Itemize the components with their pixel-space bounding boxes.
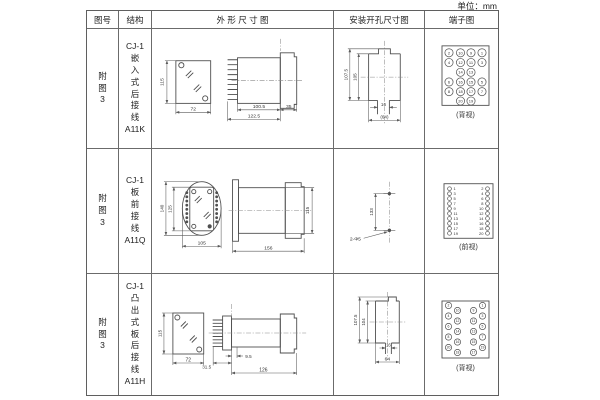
dimension-lines: [364, 194, 390, 239]
dimension-labels: 115 72 100.5 122.5 35: [159, 78, 291, 120]
spec-table: 图号 结构 外 形 尺 寸 图 安装开孔尺寸图 端子图 附 图 3 CJ-1 嵌…: [86, 10, 499, 396]
outline-diagram-row3: 115 72 9.5 31.5 126: [152, 274, 334, 395]
dimension-labels: 133 2-Φ5: [350, 208, 374, 243]
dim-label: 115: [159, 78, 165, 86]
terminal-pin: [486, 197, 490, 201]
terminal-number: 15: [469, 79, 474, 84]
terminal-number: 13: [472, 330, 476, 334]
dim-label: 100.5: [253, 104, 266, 110]
dim-label: 140: [159, 204, 164, 212]
dimension-lines: [162, 313, 297, 375]
header-fig-no: 图号: [87, 11, 119, 29]
dim-label: 156: [264, 246, 273, 252]
fig-no-row3: 附 图 3: [87, 274, 119, 395]
outline-drawing-a11h: 115 72 9.5 31.5 126: [152, 274, 333, 395]
dim-label: 107.5: [353, 314, 358, 326]
terminal-pin: [486, 207, 490, 211]
terminal-number: 19: [481, 346, 485, 350]
center-lines: [209, 304, 306, 333]
terminal-number: 20: [447, 346, 451, 350]
header-structure: 结构: [119, 11, 152, 29]
center-lines: [361, 41, 408, 124]
terminal-pin: [486, 212, 490, 216]
terminal-number: 13: [469, 70, 474, 75]
terminal-pins-grid: 2109141211314136161558181772019: [445, 49, 486, 105]
terminal-block: [444, 184, 493, 239]
dim-label: 31.5: [202, 364, 211, 369]
install-diagram-row3: 107.5 104 16 64: [334, 274, 425, 395]
terminal-pin: [448, 231, 452, 235]
terminal-number: 20: [479, 231, 484, 236]
terminal-number: 17: [469, 89, 473, 94]
dim-label: 115: [305, 206, 310, 214]
dim-label: 72: [191, 106, 197, 112]
terminal-number: 7: [481, 89, 483, 94]
install-drawing-a11q: 133 2-Φ5: [334, 149, 424, 273]
terminal-pin: [486, 217, 490, 221]
terminal-number: 3: [482, 314, 484, 318]
install-drawing-a11h: 107.5 104 16 64: [334, 274, 424, 395]
dim-label: 64: [385, 356, 391, 362]
terminal-diagram-row3: 2468201012141618911131517135719 (背视): [425, 274, 498, 395]
front-view: [182, 182, 221, 236]
view-caption: (前视): [459, 242, 478, 251]
terminal-number: 2: [448, 50, 450, 55]
terminal-diagram-row1: 2109141211314136161558181772019 (背视): [425, 29, 498, 149]
terminal-number: 20: [458, 98, 463, 103]
terminal-pin: [448, 217, 452, 221]
outline-diagram-row2: 140 125 105 156 115: [152, 149, 334, 274]
header-outline: 外 形 尺 寸 图: [152, 11, 334, 29]
dim-label: 35: [286, 104, 292, 110]
center-lines: [370, 292, 406, 360]
terminal-pin: [448, 192, 452, 196]
dimension-labels: 107.5 105 16 (64): [343, 68, 389, 119]
terminal-number: 18: [456, 351, 460, 355]
center-lines: [232, 39, 304, 81]
dim-label: 107.5: [343, 68, 348, 80]
terminal-number: 10: [458, 50, 463, 55]
fig-no-row2: 附 图 3: [87, 149, 119, 274]
terminal-number: 8: [448, 335, 450, 339]
terminal-pins-staggered: 2468201012141618911131517135719: [445, 302, 485, 355]
terminal-pin: [486, 226, 490, 230]
terminal-number: 12: [458, 60, 462, 65]
view-caption: (背视): [456, 363, 475, 372]
dim-label: 16: [381, 102, 387, 107]
terminal-pin: [448, 197, 452, 201]
dim-label: 72: [186, 357, 192, 363]
terminal-number: 2: [448, 304, 450, 308]
terminal-number: 19: [469, 98, 474, 103]
terminal-number: 12: [456, 319, 460, 323]
front-view: [173, 313, 204, 354]
terminal-number: 11: [472, 319, 476, 323]
terminal-pin: [448, 222, 452, 226]
dim-label: 122.5: [248, 114, 261, 120]
structure-row3: CJ-1 凸 出 式 板 后 接 线 A11H: [119, 274, 152, 395]
terminal-number: 1: [482, 304, 484, 308]
dimension-lines: [348, 49, 400, 122]
manual-page: 单位：mm 图号 结构 外 形 尺 寸 图 安装开孔尺寸图 端子图 附 图 3 …: [0, 0, 600, 400]
dimension-lines: [358, 297, 400, 364]
dimension-labels: 107.5 104 16 64: [353, 314, 391, 363]
terminal-number: 16: [458, 79, 463, 84]
dimension-labels: 115 72 9.5 31.5 126: [157, 329, 267, 373]
terminal-number: 6: [448, 325, 450, 329]
terminal-number: 17: [472, 351, 476, 355]
structure-row1: CJ-1 嵌 入 式 后 接 线 A11K: [119, 29, 152, 149]
side-view: [213, 314, 297, 353]
install-diagram-row2: 133 2-Φ5: [334, 149, 425, 274]
terminal-drawing-a11h: 2468201012141618911131517135719 (背视): [425, 274, 498, 395]
terminal-number: 9: [473, 309, 475, 313]
holes-label: 2-Φ5: [350, 237, 361, 243]
terminal-number: 19: [454, 231, 459, 236]
dim-label: 104: [361, 318, 366, 326]
terminal-number: 16: [456, 340, 460, 344]
structure-row2: CJ-1 板 前 接 线 A11Q: [119, 149, 152, 274]
terminal-number: 14: [456, 330, 460, 334]
dim-label: 125: [167, 205, 172, 213]
terminal-number: 5: [482, 325, 484, 329]
dim-label: (64): [380, 115, 389, 120]
terminal-number: 15: [472, 340, 476, 344]
fig-no-row1: 附 图 3: [87, 29, 119, 149]
terminal-pin: [448, 226, 452, 230]
terminal-number: 14: [458, 70, 463, 75]
install-drawing-a11k: 107.5 105 16 (64): [334, 29, 424, 148]
terminal-number: 4: [448, 314, 450, 318]
install-diagram-row1: 107.5 105 16 (64): [334, 29, 425, 149]
header-install: 安装开孔尺寸图: [334, 11, 425, 29]
terminal-pin: [486, 187, 490, 191]
dim-label: 105: [198, 241, 207, 247]
dim-label: 133: [369, 208, 374, 216]
terminal-pins-columns: 1357911131517192468101214161820: [448, 186, 490, 236]
outline-drawing-a11k: 115 72 100.5 122.5 35: [152, 29, 333, 148]
terminal-pin: [486, 202, 490, 206]
terminal-pin: [448, 202, 452, 206]
outline-drawing-a11q: 140 125 105 156 115: [152, 149, 333, 273]
header-terminal: 端子图: [425, 11, 498, 29]
terminal-pin: [486, 222, 490, 226]
dim-label: 126: [259, 367, 268, 373]
front-view: [176, 61, 211, 104]
terminal-drawing-a11q: 1357911131517192468101214161820 (前视): [425, 149, 498, 273]
outline-diagram-row1: 115 72 100.5 122.5 35: [152, 29, 334, 149]
view-caption: (背视): [456, 110, 475, 119]
terminal-number: 10: [456, 309, 460, 313]
terminal-pin: [486, 231, 490, 235]
dim-label: 9.5: [245, 354, 252, 359]
dim-label: 115: [157, 329, 162, 337]
terminal-number: 7: [482, 335, 484, 339]
dim-label: 16: [386, 342, 391, 347]
terminal-number: 18: [458, 89, 463, 94]
terminal-pin: [448, 212, 452, 216]
terminal-pin: [448, 207, 452, 211]
terminal-diagram-row2: 1357911131517192468101214161820 (前视): [425, 149, 498, 274]
terminal-pin: [486, 192, 490, 196]
terminal-pin: [448, 187, 452, 191]
dim-label: 105: [352, 73, 357, 81]
terminal-drawing-a11k: 2109141211314136161558181772019 (背视): [425, 29, 498, 148]
